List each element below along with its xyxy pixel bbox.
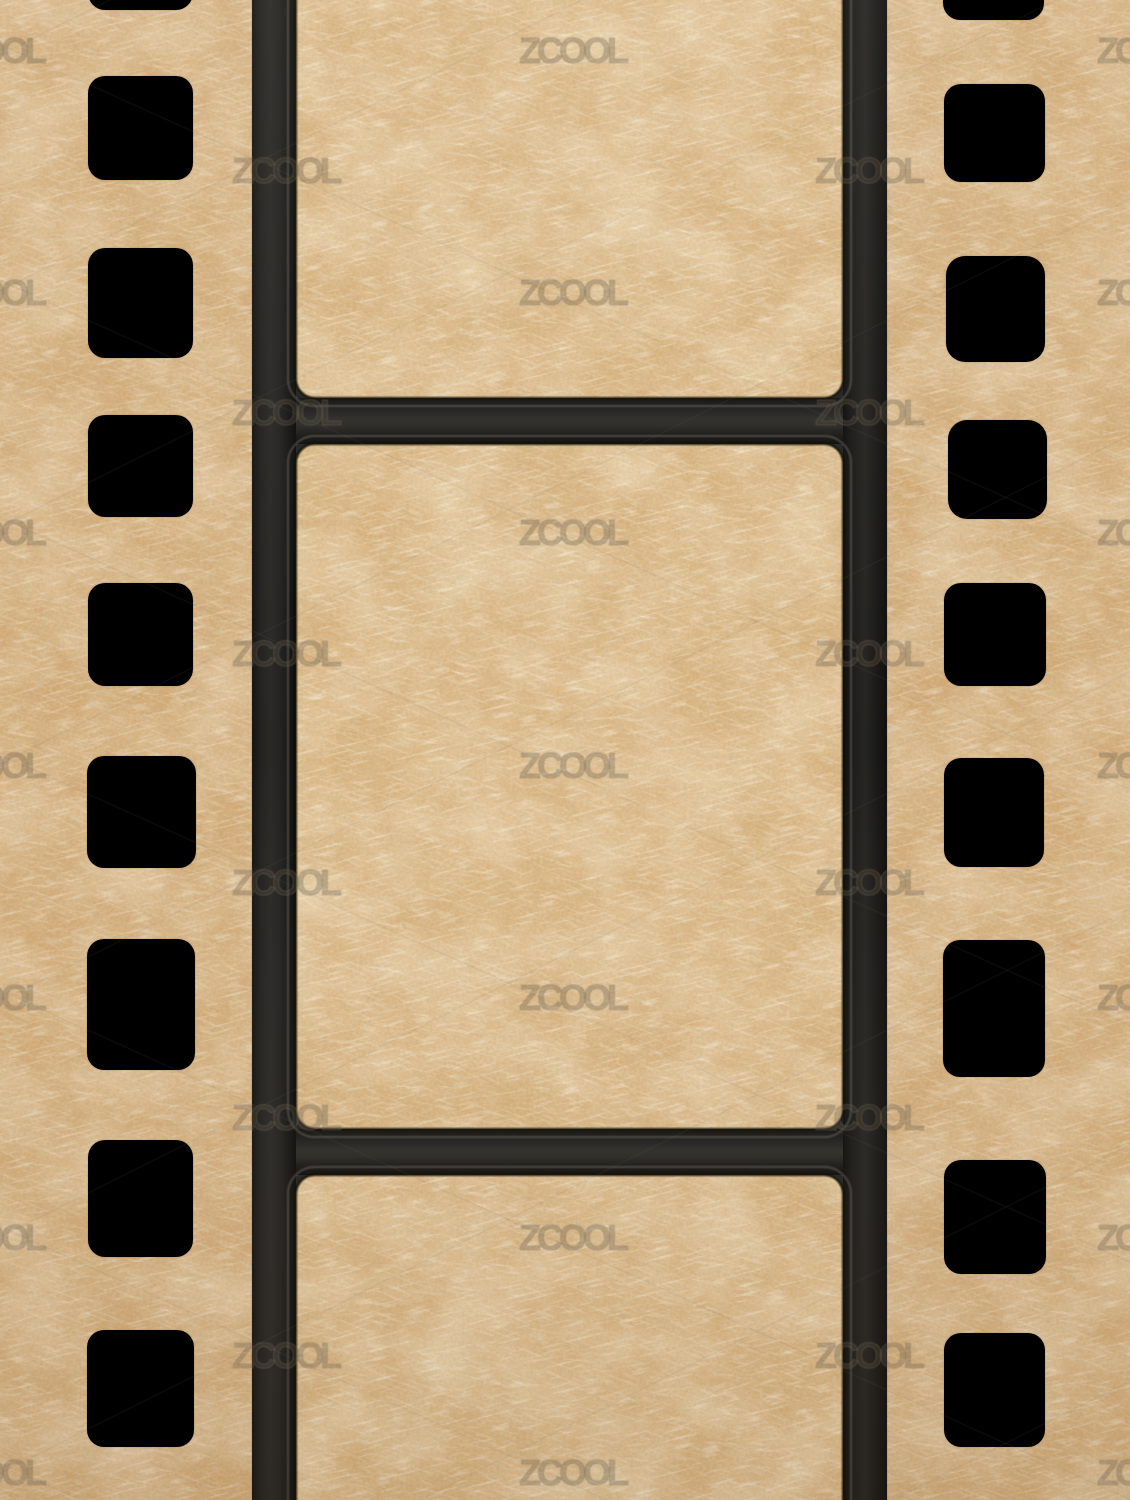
svg-text:ZCOOL: ZCOOL bbox=[232, 1335, 341, 1376]
svg-text:ZCOOL: ZCOOL bbox=[815, 862, 924, 903]
svg-text:ZCOOL: ZCOOL bbox=[1097, 1217, 1130, 1258]
svg-text:ZCOOL: ZCOOL bbox=[519, 977, 628, 1018]
svg-text:ZCOOL: ZCOOL bbox=[815, 392, 924, 433]
svg-text:ZCOOL: ZCOOL bbox=[0, 512, 46, 553]
svg-text:ZCOOL: ZCOOL bbox=[519, 512, 628, 553]
svg-text:ZCOOL: ZCOOL bbox=[232, 150, 341, 191]
svg-text:ZCOOL: ZCOOL bbox=[519, 1452, 628, 1493]
svg-text:ZCOOL: ZCOOL bbox=[1097, 745, 1130, 786]
svg-text:ZCOOL: ZCOOL bbox=[232, 1097, 341, 1138]
svg-text:ZCOOL: ZCOOL bbox=[815, 1335, 924, 1376]
svg-text:ZCOOL: ZCOOL bbox=[0, 272, 46, 313]
svg-text:ZCOOL: ZCOOL bbox=[519, 272, 628, 313]
svg-text:ZCOOL: ZCOOL bbox=[1097, 1452, 1130, 1493]
svg-text:ZCOOL: ZCOOL bbox=[0, 1217, 46, 1258]
svg-text:ZCOOL: ZCOOL bbox=[0, 745, 46, 786]
svg-text:ZCOOL: ZCOOL bbox=[519, 745, 628, 786]
svg-text:ZCOOL: ZCOOL bbox=[1097, 977, 1130, 1018]
svg-text:ZCOOL: ZCOOL bbox=[519, 1217, 628, 1258]
svg-text:ZCOOL: ZCOOL bbox=[1097, 512, 1130, 553]
svg-text:ZCOOL: ZCOOL bbox=[815, 1097, 924, 1138]
svg-text:ZCOOL: ZCOOL bbox=[519, 30, 628, 71]
svg-text:ZCOOL: ZCOOL bbox=[0, 30, 46, 71]
svg-text:ZCOOL: ZCOOL bbox=[0, 977, 46, 1018]
svg-text:ZCOOL: ZCOOL bbox=[1097, 272, 1130, 313]
svg-text:ZCOOL: ZCOOL bbox=[232, 633, 341, 674]
svg-text:ZCOOL: ZCOOL bbox=[815, 633, 924, 674]
svg-text:ZCOOL: ZCOOL bbox=[0, 1452, 46, 1493]
svg-text:ZCOOL: ZCOOL bbox=[232, 862, 341, 903]
svg-text:ZCOOL: ZCOOL bbox=[815, 150, 924, 191]
svg-text:ZCOOL: ZCOOL bbox=[232, 392, 341, 433]
svg-text:ZCOOL: ZCOOL bbox=[1097, 30, 1130, 71]
